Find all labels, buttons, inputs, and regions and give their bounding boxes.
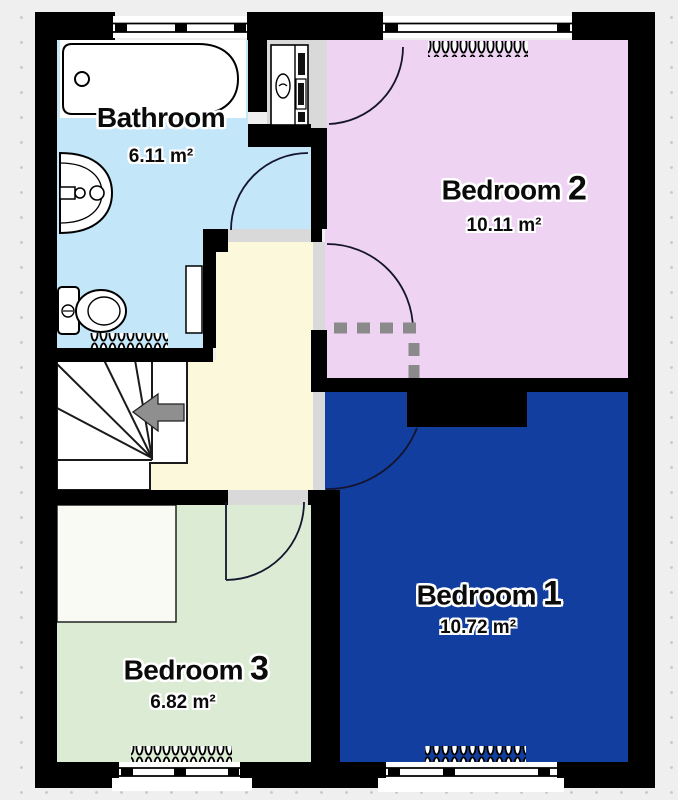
wall-bedroom3-bedroom1: [311, 490, 340, 788]
floor-plan: Bathroom 6.11 m² Bedroom2 10.11 m² Bedro…: [0, 0, 678, 800]
bedroom1-label: Bedroom1: [417, 575, 562, 614]
bathroom-wall-shelf: [186, 266, 202, 333]
wall-left: [35, 12, 57, 788]
bedroom3-door-opening: [228, 490, 308, 505]
wall-closet-left: [248, 12, 267, 112]
wall-spine-stub: [311, 229, 322, 242]
bathroom-door-opening: [228, 229, 311, 242]
wall-bottom-right: [557, 762, 655, 788]
bedroom2-radiator-icon: [428, 41, 528, 57]
sink-tap-base: [60, 187, 75, 199]
bedroom1-area: 10.72 m²: [440, 617, 516, 639]
closet-door-opening: [311, 40, 327, 128]
sink-drain: [90, 186, 104, 200]
bedroom2-number: 2: [568, 170, 586, 209]
boiler-vent-middle: [298, 83, 304, 105]
bedroom3-name: Bedroom: [124, 655, 243, 687]
bedroom3-number: 3: [250, 650, 268, 689]
wall-closet-bottom: [248, 124, 311, 147]
bedroom1-window: [378, 762, 564, 792]
wall-bottom-left: [35, 762, 119, 788]
wall-top-middle: [247, 12, 383, 40]
bedroom3-window: [112, 762, 252, 791]
bedroom3-radiator-icon: [131, 746, 232, 762]
bedroom2-floor: [325, 40, 628, 378]
bedroom2-label: Bedroom2: [442, 170, 587, 209]
wall-bedroom2-bedroom1: [311, 378, 628, 392]
boiler-vent-bottom: [298, 112, 305, 122]
wall-bathroom-bottom: [57, 348, 213, 362]
bedroom2-area: 10.11 m²: [467, 215, 542, 237]
wall-right: [628, 12, 655, 788]
wall-spine-upper: [311, 128, 327, 229]
bathtub-drain: [75, 72, 89, 86]
bedroom3-bulkhead: [57, 505, 176, 622]
bedroom3-label: Bedroom3: [124, 650, 269, 689]
bedroom3-area: 6.82 m²: [150, 692, 215, 714]
wall-bathroom-door-stub: [203, 229, 228, 252]
chimney-breast: [407, 392, 527, 427]
bedroom1-door-opening: [313, 392, 325, 490]
bathroom-radiator-icon: [90, 333, 168, 348]
bathroom-area: 6.11 m²: [129, 146, 193, 168]
sink-tap: [75, 188, 85, 198]
bedroom2-door-opening: [313, 242, 325, 330]
bedroom1-name: Bedroom: [417, 580, 536, 612]
bedroom1-number: 1: [543, 575, 561, 614]
boiler-dial-icon: [276, 74, 290, 98]
bathroom-label: Bathroom: [97, 102, 225, 134]
bathroom-window: [113, 16, 247, 38]
boiler-vent-top: [298, 53, 305, 75]
wall-bathroom-right: [203, 252, 216, 348]
boiler-cupboard: [271, 45, 308, 125]
bedroom2-name: Bedroom: [442, 175, 561, 207]
bathroom-name: Bathroom: [97, 102, 225, 134]
bedroom1-radiator-icon: [425, 746, 526, 762]
bedroom2-window: [383, 16, 572, 38]
toilet-bowl-icon: [76, 290, 126, 332]
